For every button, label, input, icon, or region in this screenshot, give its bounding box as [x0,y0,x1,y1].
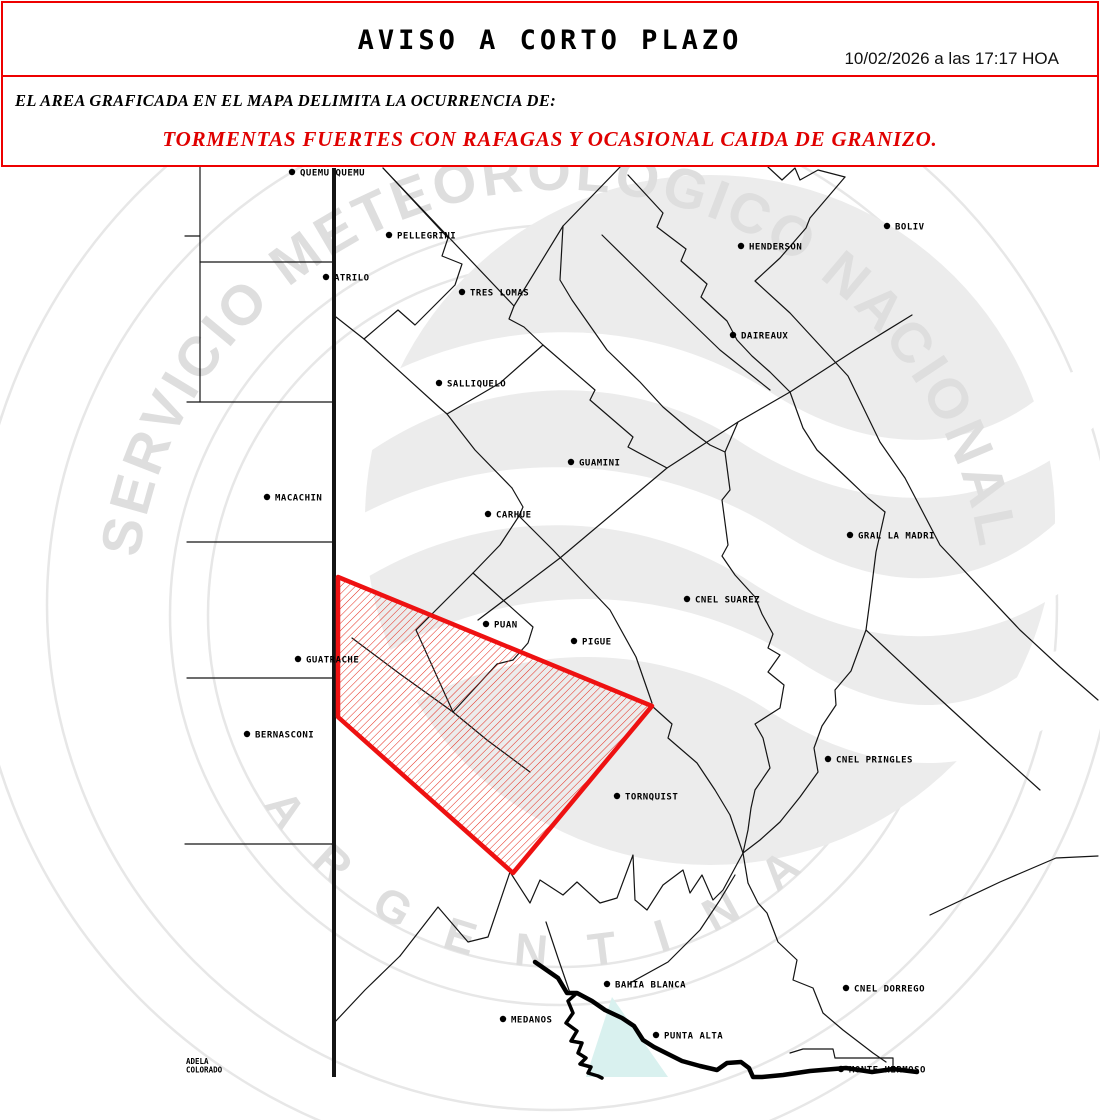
town-label: TRES LOMAS [470,289,529,299]
district-boundary [560,226,725,452]
district-boundary [790,392,885,512]
town-labels-layer: QUEMU QUEMUPELLEGRINIATRILOTRES LOMASHEN… [186,169,935,1076]
town-label: PUAN [494,621,518,631]
town-label: PIGUE [582,638,612,648]
district-boundary [630,875,735,983]
district-boundary [866,630,1040,790]
town-label: BERNASCONI [255,731,314,741]
district-boundary [334,956,400,1023]
town-label: CARHUE [496,511,532,521]
town-dot [825,756,831,762]
district-boundaries [185,167,1098,1068]
town-label: QUEMU QUEMU [300,169,365,179]
district-boundary [743,512,885,853]
town-dot [500,1016,506,1022]
district-boundary [543,345,667,468]
district-boundary [400,853,743,956]
town-label: TORNQUIST [625,793,678,803]
district-boundary [473,516,519,573]
town-label: HENDERSON [749,243,802,253]
district-boundary [478,315,912,620]
district-boundary [514,167,622,306]
town-dot [571,638,577,644]
timestamp: 10/02/2026 a las 17:17 HOA [844,49,1059,69]
town-dot [323,274,329,280]
town-label: CNEL PRINGLES [836,756,913,766]
town-dot [459,289,465,295]
district-boundary [336,168,462,339]
town-dot [244,731,250,737]
town-label: DAIREAUX [741,332,788,342]
town-label: MONTE HERMOSO [849,1066,926,1076]
town-dot [289,169,295,175]
district-boundary [768,167,845,180]
town-dot [614,793,620,799]
town-dot [847,532,853,538]
town-dot [386,232,392,238]
district-boundary [628,175,790,392]
town-dot [436,380,442,386]
advisory-intro: EL AREA GRAFICADA EN EL MAPA DELIMITA LA… [15,91,1097,111]
town-dot [738,243,744,249]
advisory-box: EL AREA GRAFICADA EN EL MAPA DELIMITA LA… [1,75,1099,167]
district-boundary [602,235,770,390]
town-label: BAHIA BLANCA [615,981,686,991]
district-boundary [722,422,784,853]
town-dot [684,596,690,602]
town-dot [264,494,270,500]
district-boundary [743,853,886,1062]
town-label: MEDANOS [511,1016,552,1026]
town-dot [483,621,489,627]
advisory-hazard: TORMENTAS FUERTES CON RAFAGAS Y OCASIONA… [3,127,1097,152]
town-dot [843,985,849,991]
town-dot [295,656,301,662]
town-label: ATRILO [334,274,370,284]
town-label: CNEL SUAREZ [695,596,760,606]
town-dot [838,1066,844,1072]
header: AVISO A CORTO PLAZO 10/02/2026 a las 17:… [1,1,1099,77]
map-area: SERVICIO METEOROLÓGICO NACIONALA R G E N… [0,167,1100,1120]
town-label: GUAMINI [579,459,620,469]
town-label: BOLIV [895,223,925,233]
map-layer: QUEMU QUEMUPELLEGRINIATRILOTRES LOMASHEN… [0,167,1100,1120]
town-label: MACACHIN [275,494,322,504]
town-label: GUATRACHE [306,656,359,666]
town-dot [884,223,890,229]
advisory-page: AVISO A CORTO PLAZO 10/02/2026 a las 17:… [0,0,1100,1120]
town-label: PELLEGRINI [397,232,456,242]
district-boundary [930,856,1098,915]
corner-label: COLORADO [186,1066,223,1075]
town-dot [485,511,491,517]
district-boundary [652,706,743,853]
district-boundary [364,339,512,488]
town-label: CNEL DORREGO [854,985,925,995]
town-dot [730,332,736,338]
town-label: GRAL LA MADRI [858,532,935,542]
town-dot [604,981,610,987]
town-label: PUNTA ALTA [664,1032,723,1042]
town-dot [653,1032,659,1038]
town-dot [568,459,574,465]
district-boundary [755,177,1098,700]
town-label: SALLIQUELO [447,380,506,390]
